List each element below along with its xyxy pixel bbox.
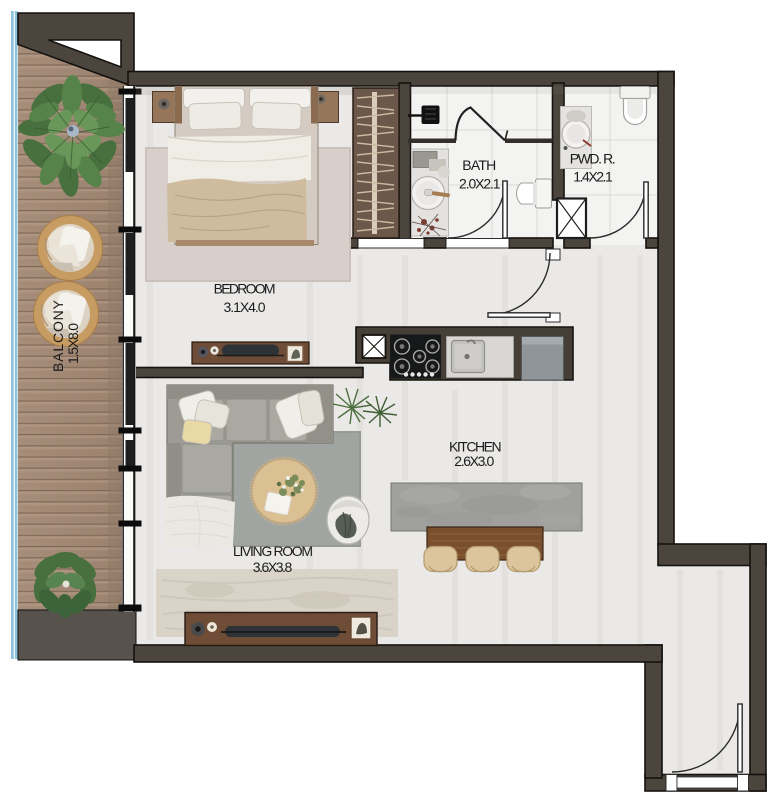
svg-text:BALCONY: BALCONY [50, 299, 66, 372]
svg-text:3.6X3.8: 3.6X3.8 [253, 559, 293, 575]
svg-text:1.4X2.1: 1.4X2.1 [573, 169, 613, 185]
svg-text:PWD. R.: PWD. R. [570, 151, 616, 167]
svg-text:2.6X3.0: 2.6X3.0 [454, 453, 494, 469]
svg-text:1.5X8.0: 1.5X8.0 [65, 323, 81, 364]
svg-text:BEDROOM: BEDROOM [214, 281, 276, 297]
svg-text:2.0X2.1: 2.0X2.1 [459, 176, 501, 192]
svg-text:LIVING ROOM: LIVING ROOM [233, 543, 313, 559]
svg-text:BATH: BATH [462, 157, 496, 173]
svg-text:3.1X4.0: 3.1X4.0 [224, 299, 266, 315]
